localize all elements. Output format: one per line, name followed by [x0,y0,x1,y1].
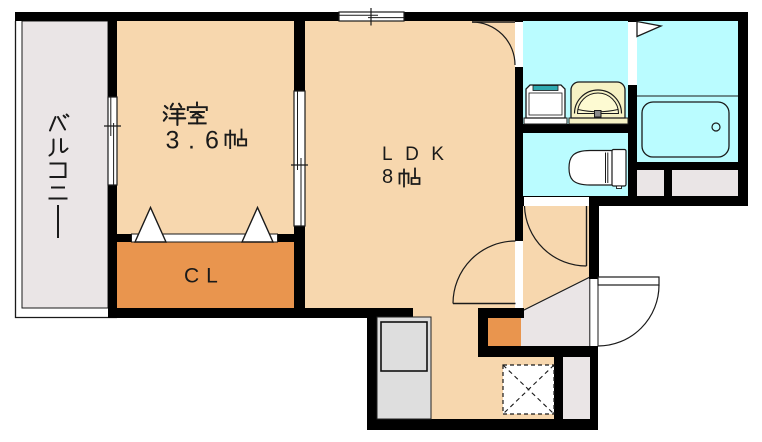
svg-text:CL: CL [184,265,225,288]
svg-text:8: 8 [382,166,393,188]
svg-text:.: . [188,127,195,155]
svg-text:LDK: LDK [382,144,456,165]
svg-text:6: 6 [205,127,219,155]
svg-text:3: 3 [166,127,180,155]
